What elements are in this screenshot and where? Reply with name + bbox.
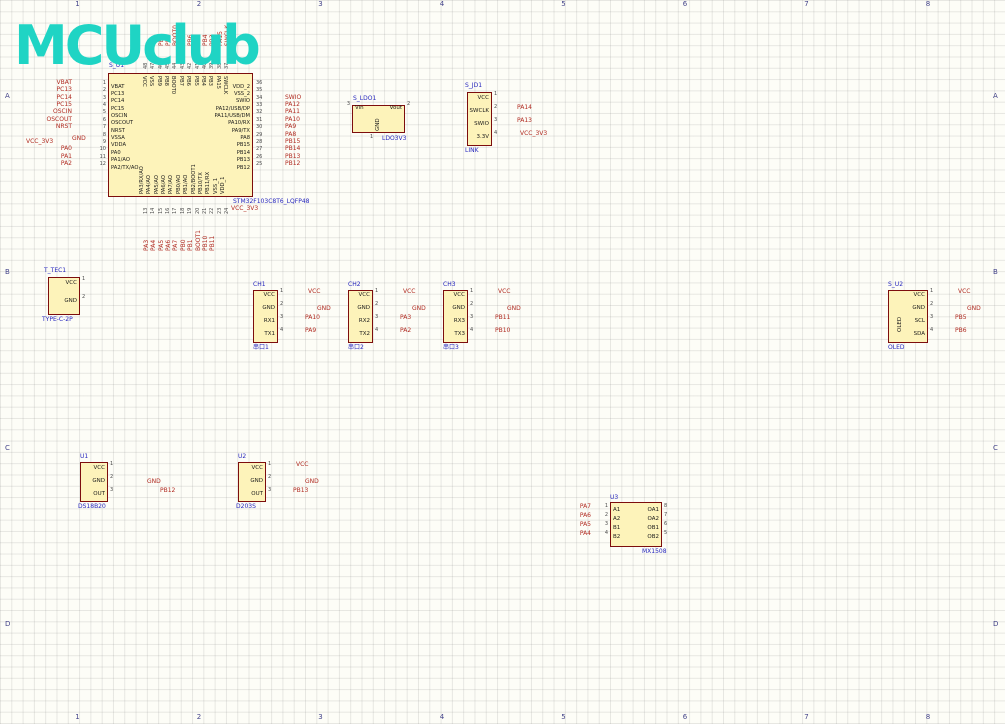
pin-number: 32 [256, 110, 262, 115]
pin-name: VCC [240, 466, 263, 472]
zone-col-label: 2 [197, 714, 201, 721]
pin-name: NRST [111, 129, 125, 134]
net-label[interactable]: PB5 [955, 315, 967, 321]
pin-name: PB14 [168, 151, 250, 156]
pin-name: VCC [50, 281, 77, 287]
designator[interactable]: CH1 [253, 282, 266, 288]
pin-number: 4 [94, 103, 106, 108]
pin-number: 2 [110, 475, 113, 480]
net-label[interactable]: PB14 [285, 146, 300, 152]
pin-number: 13 [144, 208, 149, 214]
pin-number: 2 [598, 513, 608, 518]
pin-number: 2 [494, 105, 497, 110]
power-label[interactable]: VCC [403, 289, 415, 295]
part-number[interactable]: OLED [888, 345, 904, 351]
pin-number: 6 [664, 522, 667, 527]
net-label[interactable]: PC13 [44, 87, 72, 93]
pin-number: 4 [280, 328, 283, 333]
pin-number: 2 [280, 302, 283, 307]
zone-col-label: 4 [440, 714, 444, 721]
pin-name: VCC [255, 293, 275, 299]
net-label[interactable]: PA0 [44, 146, 72, 152]
zone-col-label: 8 [926, 714, 930, 721]
pin-name: VCC [445, 293, 465, 299]
net-label[interactable]: PB10 [495, 328, 510, 334]
zone-col-label: 5 [561, 714, 565, 721]
pin-name: OSCIN [111, 114, 127, 119]
pin-name: SDA [890, 332, 925, 338]
pin-name: PC13 [111, 92, 124, 97]
power-label[interactable]: VCC_3V3 [26, 139, 53, 145]
power-label[interactable]: VCC [296, 462, 308, 468]
zone-col-label: 5 [561, 1, 565, 8]
pin-number: 3 [340, 102, 350, 107]
pin-name: GND [890, 306, 925, 312]
pin-number: 6 [94, 118, 106, 123]
zone-col-label: 6 [683, 1, 687, 8]
pin-name: A1 [613, 508, 620, 514]
pin-number: 27 [256, 147, 262, 152]
pin-number: 10 [94, 147, 106, 152]
net-label[interactable]: PB13 [285, 154, 300, 160]
pin-number: 1 [268, 462, 271, 467]
pin-name: RX1 [255, 319, 275, 325]
pin-number: 33 [256, 103, 262, 108]
zone-col-label: 3 [318, 714, 322, 721]
power-label[interactable]: GND [967, 306, 981, 312]
pin-name: VDD_1 [221, 177, 226, 194]
pin-number: 29 [256, 133, 262, 138]
pin-number: 3 [494, 118, 497, 123]
pin-name: GND [50, 299, 77, 305]
pin-number: 2 [930, 302, 933, 307]
pin-number: 21 [203, 208, 208, 214]
zone-col-label: 3 [318, 1, 322, 8]
pin-number: 2 [375, 302, 378, 307]
net-label[interactable]: OSCOUT [44, 117, 72, 123]
pin-name: A2 [613, 517, 620, 523]
pin-number: 26 [256, 155, 262, 160]
pin-number: 2 [407, 102, 410, 107]
pin-name: PA8 [168, 136, 250, 141]
pin-number: 1 [370, 135, 373, 140]
pin-name: PB7 [177, 76, 182, 86]
part-number[interactable]: MX1508 [642, 549, 667, 555]
zone-col-label: 7 [804, 1, 808, 8]
pin-number: 15 [159, 208, 164, 214]
zone-row-label: C [5, 445, 10, 452]
pin-number: 2 [82, 295, 85, 300]
net-label[interactable]: NRST [44, 124, 72, 130]
pin-number: 1 [94, 81, 106, 86]
pin-number: 25 [256, 162, 262, 167]
pin-name: VBAT [111, 85, 124, 90]
pin-name: PA15 [214, 76, 219, 89]
pin-name: PA9/TX [168, 129, 250, 134]
pin-name: VSS_2 [168, 92, 250, 97]
net-label[interactable]: PA10 [285, 117, 300, 123]
pin-number: 18 [181, 208, 186, 214]
pin-name: PA6/AO [162, 175, 167, 194]
pin-number: 2 [94, 88, 106, 93]
pin-number: 28 [256, 140, 262, 145]
pin-number: 16 [166, 208, 171, 214]
power-label[interactable]: VCC [958, 289, 970, 295]
pin-name: TX3 [445, 332, 465, 338]
pin-name: RX2 [350, 319, 370, 325]
pin-number: 7 [664, 513, 667, 518]
pin-number: 17 [173, 208, 178, 214]
pin-name: PB6 [185, 76, 190, 86]
pin-name: PC15 [111, 107, 124, 112]
designator[interactable]: U3 [610, 495, 618, 501]
schematic-sheet: MCUclub 1122334455667788AABBCCDDS_U1STM3… [0, 0, 1005, 724]
pin-name: SWCLK [222, 76, 227, 94]
designator[interactable]: CH3 [443, 282, 456, 288]
pin-name: SWIO [469, 122, 489, 128]
part-number[interactable]: D203S [236, 504, 256, 510]
part-number[interactable]: 串口3 [443, 345, 459, 351]
part-number[interactable]: LDO3V3 [382, 136, 406, 142]
pin-name: PB0/AO [177, 175, 182, 194]
zone-row-label: A [993, 93, 998, 100]
net-label[interactable]: SWIO [285, 95, 301, 101]
pin-name: VDDA [111, 143, 126, 148]
net-label[interactable]: PA3 [400, 315, 411, 321]
net-label[interactable]: PB1 [188, 239, 194, 251]
pin-number: 8 [94, 133, 106, 138]
net-label[interactable]: PB12 [285, 161, 300, 167]
designator[interactable]: S_U2 [888, 282, 903, 288]
pin-name: PC14 [111, 99, 124, 104]
pin-number: 4 [598, 531, 608, 536]
net-label[interactable]: PA14 [517, 105, 532, 111]
pin-number: 4 [375, 328, 378, 333]
zone-col-label: 1 [75, 1, 79, 8]
pin-name: PB2/BOOT1 [192, 164, 197, 194]
pin-name: PB8 [163, 76, 168, 86]
net-label[interactable]: PA10 [305, 315, 320, 321]
pin-name: PA2/TX/AO [111, 166, 138, 171]
pin-number: 3 [110, 488, 113, 493]
zone-col-label: 2 [197, 1, 201, 8]
net-label[interactable]: PA5 [565, 522, 591, 528]
pin-number: 31 [256, 118, 262, 123]
pin-name: PB13 [168, 158, 250, 163]
designator[interactable]: U2 [238, 454, 246, 460]
net-label[interactable]: PA9 [305, 328, 316, 334]
pin-number: 20 [196, 208, 201, 214]
designator[interactable]: S_JD1 [465, 83, 482, 89]
pin-number: 24 [225, 208, 230, 214]
designator[interactable]: S_LDO1 [353, 96, 376, 102]
zone-row-label: C [993, 445, 998, 452]
pin-name: GND [240, 479, 263, 485]
pin-name: VCC [890, 293, 925, 299]
net-label[interactable]: PA4 [151, 240, 157, 251]
zone-row-label: B [993, 269, 998, 276]
pin-name: RX3 [445, 319, 465, 325]
pin-name: TX1 [255, 332, 275, 338]
pin-number: 9 [94, 140, 106, 145]
zone-row-label: D [993, 621, 998, 628]
pin-name: B1 [613, 526, 620, 532]
net-label[interactable]: PB15 [285, 139, 300, 145]
net-label[interactable]: PB13 [293, 488, 308, 494]
pin-name: OUT [240, 492, 263, 498]
pin-name: PB9 [155, 76, 160, 86]
pin-name: SCL [890, 319, 925, 325]
part-number[interactable]: 串口1 [253, 345, 269, 351]
pin-number: 1 [598, 504, 608, 509]
zone-row-label: D [5, 621, 10, 628]
pin-number: 14 [151, 208, 156, 214]
net-label[interactable]: VBAT [44, 80, 72, 86]
pin-name: VSS [148, 76, 153, 86]
zone-col-label: 7 [804, 714, 808, 721]
pin-name: VSSA [111, 136, 125, 141]
part-number[interactable]: DS18B20 [78, 504, 106, 510]
power-label[interactable]: GND [305, 479, 319, 485]
net-label[interactable]: PB6 [955, 328, 967, 334]
pin-number: 30 [256, 125, 262, 130]
pin-name: PA0 [111, 151, 121, 156]
net-label[interactable]: PA4 [565, 531, 591, 537]
part-number[interactable]: 串口2 [348, 345, 364, 351]
pin-number: 1 [280, 289, 283, 294]
pin-name: PA3/RX/AO [140, 166, 145, 194]
power-label[interactable]: VCC [498, 289, 510, 295]
designator[interactable]: U1 [80, 454, 88, 460]
pin-name: PA1/AO [111, 158, 130, 163]
pin-name: PB15 [168, 143, 250, 148]
pin-number: 8 [664, 504, 667, 509]
pin-name: VCC [141, 76, 146, 87]
pin-number: 22 [210, 208, 215, 214]
pin-number: 7 [94, 125, 106, 130]
net-label[interactable]: PA13 [517, 118, 532, 124]
power-label[interactable]: GND [507, 306, 521, 312]
pin-name: OUT [82, 492, 105, 498]
pin-number: 1 [494, 92, 497, 97]
pin-number: 1 [82, 277, 85, 282]
power-label[interactable]: GND [412, 306, 426, 312]
pin-number: 4 [494, 131, 497, 136]
zone-col-label: 6 [683, 714, 687, 721]
pin-name: VCC [82, 466, 105, 472]
part-number[interactable]: LINK [465, 148, 479, 154]
zone-col-label: 8 [926, 1, 930, 8]
pin-number: 11 [94, 155, 106, 160]
pin-name: PB12 [168, 166, 250, 171]
net-label[interactable]: PC14 [44, 95, 72, 101]
pin-name: VSS_1 [214, 178, 219, 194]
pin-name: PA10/RX [168, 121, 250, 126]
net-label[interactable]: PA8 [285, 132, 296, 138]
pin-name: PB11/RX [206, 172, 211, 194]
pin-number: 3 [94, 96, 106, 101]
net-label[interactable]: PA7 [565, 504, 591, 510]
wire-layer [0, 0, 1005, 724]
pin-name: PA5/AO [155, 175, 160, 194]
net-label[interactable]: PC15 [44, 102, 72, 108]
power-label[interactable]: GND [147, 479, 161, 485]
pin-name: PB3 [207, 76, 212, 86]
pin-number: 1 [930, 289, 933, 294]
pin-number: 3 [280, 315, 283, 320]
pin-number: 1 [110, 462, 113, 467]
pin-number: 3 [470, 315, 473, 320]
pin-name: PB10/TX [199, 172, 204, 194]
net-label[interactable]: PA7 [173, 240, 179, 251]
pin-name: PA12/USB/DP [168, 107, 250, 112]
pin-number: 2 [268, 475, 271, 480]
net-label[interactable]: PB11 [210, 236, 216, 251]
pin-name: SWCLK [469, 109, 489, 115]
pin-name: VCC [350, 293, 370, 299]
pin-name: PB5 [192, 76, 197, 86]
pin-name: OSCOUT [111, 121, 133, 126]
pin-name: GND [445, 306, 465, 312]
pin-name: Vin [355, 106, 364, 112]
pin-number: 3 [598, 522, 608, 527]
pin-name: GND [350, 306, 370, 312]
net-label[interactable]: PA1 [44, 154, 72, 160]
logo[interactable]: MCUclub [14, 14, 258, 77]
pin-number: 3 [375, 315, 378, 320]
pin-name: PA7/AO [169, 175, 174, 194]
zone-row-label: B [5, 269, 10, 276]
pin-name: BOOT0 [170, 76, 175, 94]
zone-col-label: 4 [440, 1, 444, 8]
pin-name: 3.3V [469, 135, 489, 141]
power-label[interactable]: GND [317, 306, 331, 312]
net-label[interactable]: OSCIN [44, 109, 72, 115]
pin-number: 3 [930, 315, 933, 320]
zone-row-label: A [5, 93, 10, 100]
pin-number: 19 [188, 208, 193, 214]
net-label[interactable]: GND [72, 136, 86, 142]
pin-name: GND [82, 479, 105, 485]
net-label[interactable]: PB11 [495, 315, 510, 321]
pin-number: 2 [470, 302, 473, 307]
pin-name: PA11/USB/DM [168, 114, 250, 119]
pin-number: 1 [470, 289, 473, 294]
pin-number: 36 [256, 81, 262, 86]
pin-number: 34 [256, 96, 262, 101]
pin-name: PA4/AO [147, 175, 152, 194]
net-label[interactable]: PA2 [400, 328, 411, 334]
power-label[interactable]: VCC_3V3 [520, 131, 547, 137]
power-label[interactable]: VCC_3V3 [231, 206, 258, 212]
pin-name: PB1/AO [184, 175, 189, 194]
pin-number: 12 [94, 162, 106, 167]
pin-name: GND [255, 306, 275, 312]
net-label[interactable]: PA9 [285, 124, 296, 130]
pin-number: 4 [930, 328, 933, 333]
net-label[interactable]: PB12 [160, 488, 175, 494]
net-label[interactable]: PA11 [285, 109, 300, 115]
net-label[interactable]: PA12 [285, 102, 300, 108]
pin-number: 5 [664, 531, 667, 536]
designator[interactable]: CH2 [348, 282, 361, 288]
pin-name: B2 [613, 535, 620, 541]
pin-name: SWIO [168, 99, 250, 104]
pin-name: TX2 [350, 332, 370, 338]
part-number[interactable]: TYPE-C-2P [42, 317, 73, 323]
zone-col-label: 1 [75, 714, 79, 721]
pin-name: PB4 [199, 76, 204, 86]
pin-number: 3 [268, 488, 271, 493]
pin-name: VCC [469, 96, 489, 102]
net-label[interactable]: PA6 [565, 513, 591, 519]
net-label[interactable]: PA2 [44, 161, 72, 167]
vertical-label: GND [376, 118, 382, 131]
pin-number: 5 [94, 110, 106, 115]
designator[interactable]: T_TEC1 [44, 268, 66, 274]
net-label[interactable]: BOOT1 [196, 230, 202, 251]
pin-number: 1 [375, 289, 378, 294]
pin-number: 4 [470, 328, 473, 333]
pin-number: 35 [256, 88, 262, 93]
pin-number: 23 [218, 208, 223, 214]
power-label[interactable]: VCC [308, 289, 320, 295]
